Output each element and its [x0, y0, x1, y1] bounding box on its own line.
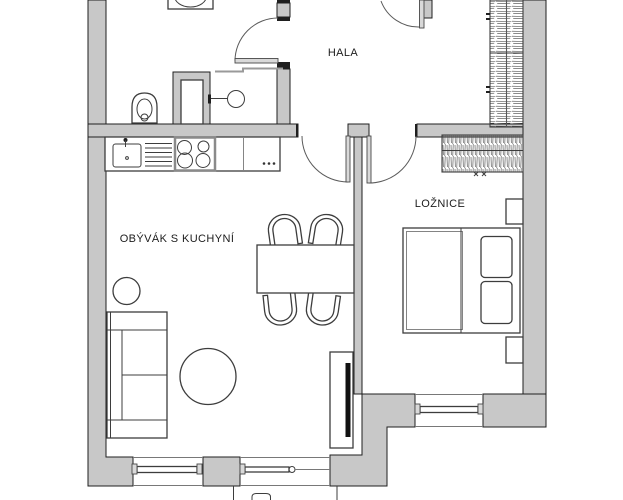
wall-bathroom-right-lower — [277, 69, 290, 124]
kitchen — [105, 137, 280, 171]
wall-bathroom-right-upper — [277, 3, 290, 17]
jamb-mark — [296, 124, 299, 137]
nightstand — [506, 199, 523, 224]
tv-screen — [346, 363, 351, 437]
window-jamb — [415, 404, 420, 414]
entry-door-leaf — [420, 0, 425, 28]
bedroom-wardrobe — [442, 135, 523, 172]
room-label-hala: HALA — [328, 47, 359, 59]
floor-plan: HALA LOŽNICE OBÝVÁK S KUCHYNÍ — [0, 0, 623, 500]
bathroom-door-leaf — [235, 59, 278, 64]
balcony-door-frame — [245, 467, 289, 472]
jamb-mark — [415, 124, 418, 137]
drawer-handle-dots — [263, 162, 276, 165]
bedroom-door-leaf — [367, 136, 371, 183]
wardrobe-tick — [486, 13, 490, 15]
tv-unit — [330, 352, 353, 448]
wardrobe-tick — [486, 91, 490, 93]
dining-table — [257, 245, 354, 293]
jamb-mark — [277, 17, 290, 21]
window-jamb — [240, 464, 245, 474]
washbasin — [168, 0, 213, 9]
shower-valve — [208, 95, 211, 104]
bed-pillow — [481, 282, 512, 324]
window-jamb — [197, 464, 202, 474]
nightstand — [506, 337, 523, 363]
window-jamb — [132, 464, 137, 474]
room-label-obyvak: OBÝVÁK S KUCHYNÍ — [120, 232, 235, 245]
hall-wardrobe — [486, 0, 523, 127]
wardrobe-tick — [486, 86, 490, 88]
room-label-loznice: LOŽNICE — [415, 197, 465, 210]
living-window-frame — [137, 467, 197, 473]
living-door-leaf — [346, 136, 350, 182]
wardrobe-tick — [486, 18, 490, 20]
wall-mid-horizontal-left — [88, 124, 298, 137]
wall-mid-pier-between-doors — [348, 124, 369, 137]
shower-tray — [181, 80, 203, 124]
jamb-mark — [277, 0, 290, 3]
sofa — [107, 312, 167, 438]
bed-pillow — [481, 237, 512, 278]
wall-divider-living-bedroom — [354, 137, 362, 394]
coffee-table — [180, 349, 236, 405]
window-jamb — [478, 404, 483, 414]
plant — [113, 278, 140, 305]
wall-bedroom-bottom-right — [483, 394, 546, 427]
wall-right-outer — [523, 0, 546, 427]
wall-living-bottom-pier — [203, 457, 240, 486]
bedroom-window-frame — [420, 407, 478, 413]
